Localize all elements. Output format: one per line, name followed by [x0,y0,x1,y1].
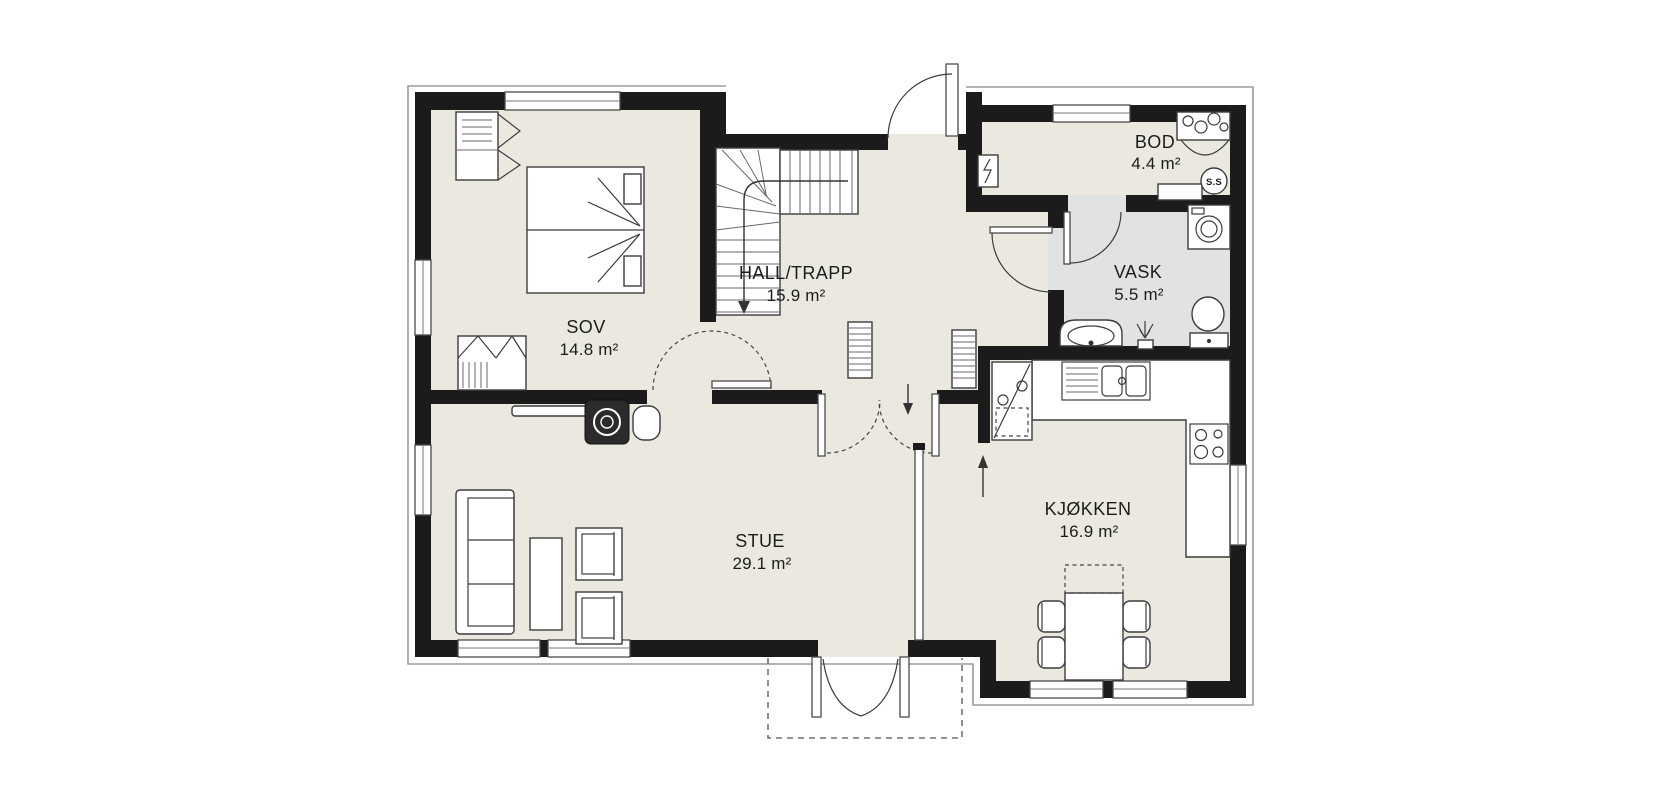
vanity-sink [1060,320,1122,346]
room-name-vask: VASK [1114,262,1162,282]
room-area-kjokken: 16.9 m² [1059,522,1118,541]
chimney-label: S.S [1206,177,1222,188]
floor-plan-page: S.S [0,0,1670,800]
window-sov-north [505,92,620,110]
room-name-sov: SOV [566,317,605,337]
sofa [456,490,514,634]
stue-kitchen-partition [913,443,925,640]
room-name-kjokken: KJØKKEN [1045,499,1132,519]
radiator-hall-2 [952,330,976,388]
wood-stove [585,400,629,444]
radiator-hall [848,322,872,378]
room-name-hall: HALL/TRAPP [739,263,853,283]
washing-machine [1188,205,1230,249]
entry-recess [726,80,966,134]
window-kitchen-south-2 [1113,681,1187,698]
window-stue-west [415,445,431,515]
window-kitchen-south-1 [1030,681,1103,698]
room-area-vask: 5.5 m² [1114,285,1164,304]
window-bod-north [1053,105,1130,122]
window-stue-south-1 [458,640,540,657]
floor-vask-doorway [1048,228,1064,290]
armchair-2 [576,592,622,644]
armchair-1 [576,528,622,580]
tv-bench [512,406,590,416]
room-area-bod: 4.4 m² [1131,154,1181,173]
coffee-table [530,538,562,630]
electrical-panel [978,155,998,187]
veranda-double-door [812,657,909,717]
veranda [768,658,962,738]
room-name-stue: STUE [735,531,785,551]
floor-bod-doorway [1068,195,1126,212]
vent-duct [1158,184,1202,200]
room-area-hall: 15.9 m² [766,286,825,305]
side-table [633,406,660,440]
room-area-stue: 29.1 m² [732,554,791,573]
window-sov-west [415,260,431,335]
room-area-sov: 14.8 m² [559,340,618,359]
floor-plan-drawing: S.S [0,0,1670,800]
wardrobe-bottom [458,336,526,390]
window-kitchen-east [1230,465,1246,545]
chimney: S.S [1201,168,1227,194]
room-name-bod: BOD [1135,132,1175,152]
fridge-freezer [992,362,1032,440]
bed [527,167,644,293]
